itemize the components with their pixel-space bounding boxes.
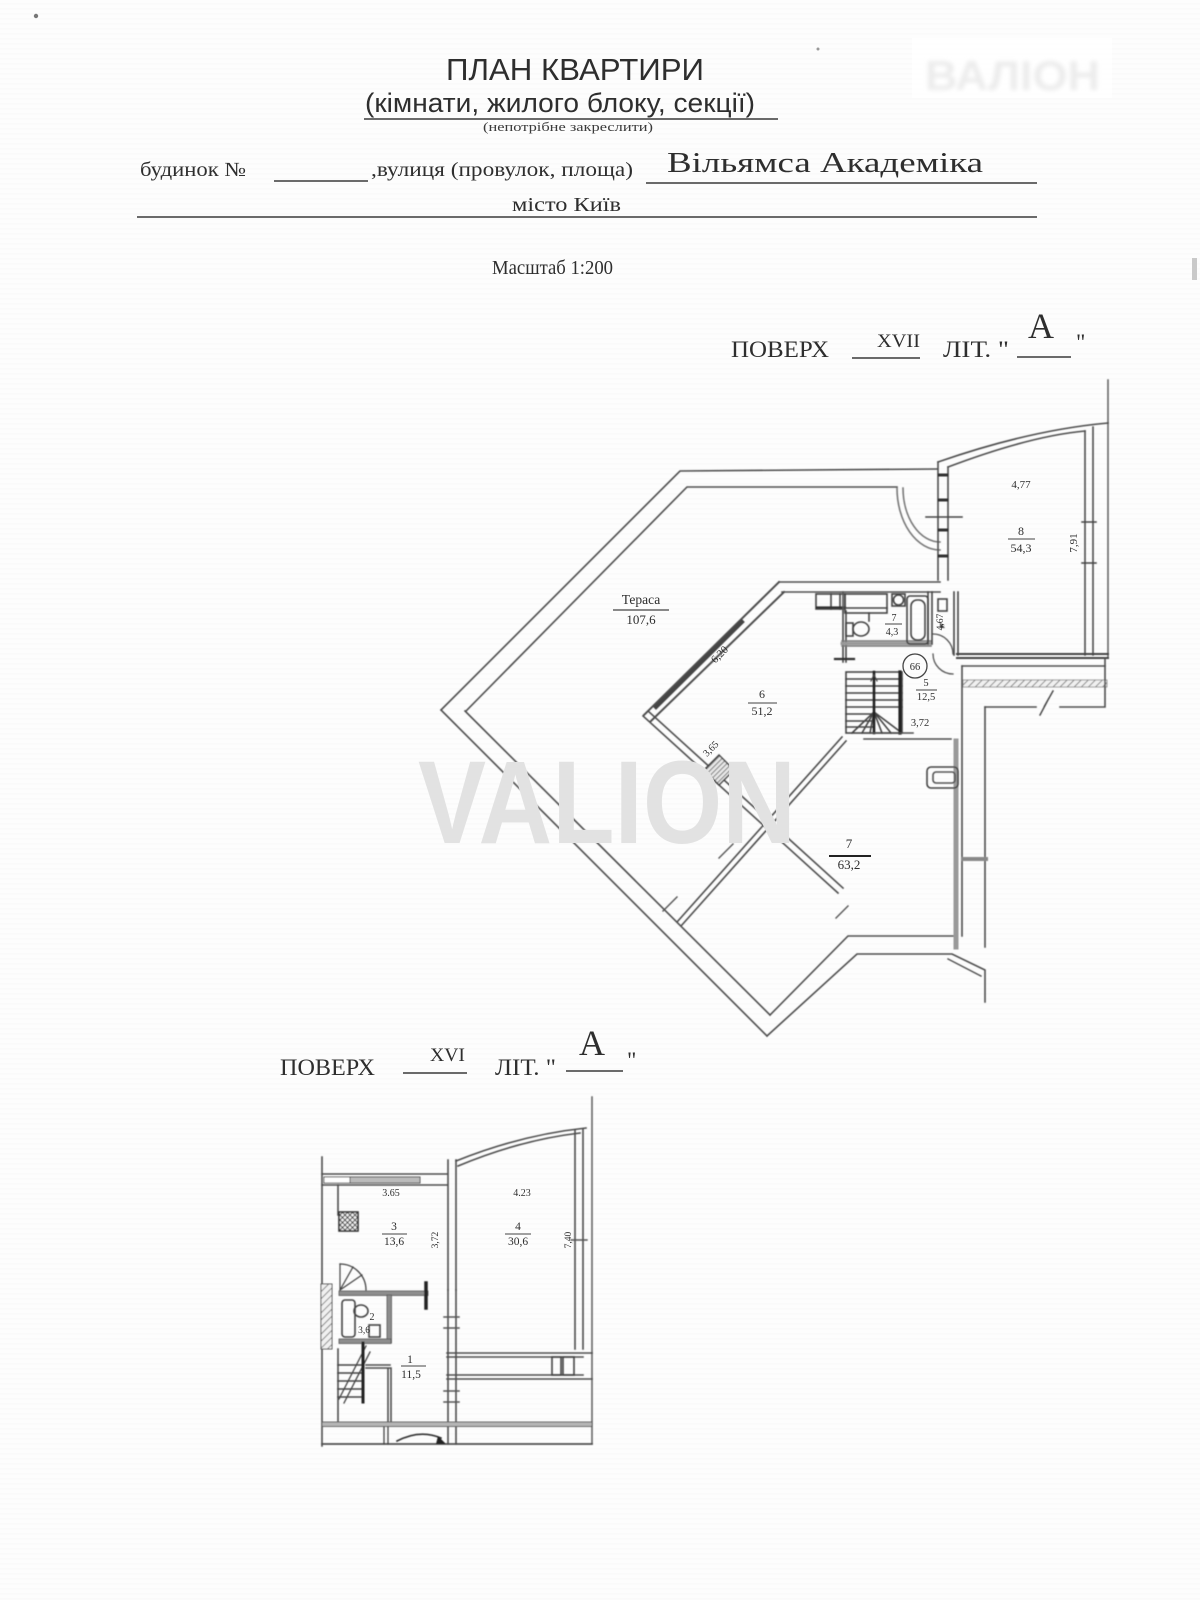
svg-text:будинок №: будинок № bbox=[140, 159, 246, 181]
svg-text:(кімнати, жилого блоку, секції: (кімнати, жилого блоку, секції) bbox=[365, 88, 755, 118]
svg-text:54,3: 54,3 bbox=[1011, 541, 1032, 555]
svg-text:30,6: 30,6 bbox=[508, 1236, 528, 1248]
svg-text:VALION: VALION bbox=[418, 737, 796, 869]
svg-text:4,3: 4,3 bbox=[886, 627, 899, 638]
svg-text:1: 1 bbox=[407, 1354, 413, 1366]
svg-text:4,67: 4,67 bbox=[936, 613, 946, 630]
svg-text:7: 7 bbox=[892, 613, 897, 624]
svg-text:3,6: 3,6 bbox=[358, 1326, 370, 1336]
svg-text:8: 8 bbox=[1018, 524, 1024, 538]
svg-text:ПОВЕРХ: ПОВЕРХ bbox=[731, 337, 829, 362]
svg-text:7: 7 bbox=[846, 836, 853, 851]
svg-text:А: А bbox=[1028, 306, 1054, 346]
svg-text:4,77: 4,77 bbox=[1011, 479, 1031, 491]
svg-text:Масштаб 1:200: Масштаб 1:200 bbox=[492, 257, 613, 279]
svg-text:XVII: XVII bbox=[877, 331, 920, 352]
svg-text:3,72: 3,72 bbox=[431, 1231, 441, 1248]
svg-text:3.65: 3.65 bbox=[382, 1188, 400, 1199]
svg-text:ВАЛІОН: ВАЛІОН bbox=[925, 52, 1100, 99]
svg-text:4: 4 bbox=[515, 1221, 521, 1233]
svg-text:ПЛАН КВАРТИРИ: ПЛАН КВАРТИРИ bbox=[446, 52, 704, 87]
svg-text:,вулиця (провулок, площа): ,вулиця (провулок, площа) bbox=[371, 159, 633, 181]
svg-text:": " bbox=[1076, 330, 1085, 355]
svg-text:6: 6 bbox=[759, 687, 765, 701]
svg-text:13,6: 13,6 bbox=[384, 1236, 404, 1248]
svg-text:63,2: 63,2 bbox=[838, 857, 861, 872]
svg-text:107,6: 107,6 bbox=[626, 612, 656, 627]
svg-text:7,91: 7,91 bbox=[1068, 533, 1080, 552]
svg-text:місто Київ: місто Київ bbox=[512, 194, 621, 216]
svg-text:7,40: 7,40 bbox=[564, 1231, 574, 1248]
svg-text:ПОВЕРХ: ПОВЕРХ bbox=[280, 1055, 375, 1080]
svg-text:11,5: 11,5 bbox=[401, 1369, 421, 1381]
svg-text:Вільямса Академіка: Вільямса Академіка bbox=[667, 148, 984, 179]
svg-text:(непотрібне закреслити): (непотрібне закреслити) bbox=[483, 120, 653, 134]
svg-text:XVI: XVI bbox=[430, 1045, 465, 1066]
svg-text:": " bbox=[627, 1048, 636, 1073]
svg-text:3,72: 3,72 bbox=[911, 718, 929, 729]
svg-text:66: 66 bbox=[910, 662, 921, 673]
svg-text:ЛІТ. ": ЛІТ. " bbox=[943, 337, 1009, 362]
svg-text:4.23: 4.23 bbox=[513, 1188, 531, 1199]
svg-text:5: 5 bbox=[923, 678, 928, 689]
svg-text:ЛІТ. ": ЛІТ. " bbox=[495, 1055, 556, 1080]
svg-text:12,5: 12,5 bbox=[917, 692, 935, 703]
svg-text:2: 2 bbox=[370, 1312, 375, 1323]
svg-text:Тераса: Тераса bbox=[622, 592, 661, 607]
svg-text:51,2: 51,2 bbox=[752, 704, 773, 718]
svg-text:А: А bbox=[579, 1023, 605, 1063]
svg-text:3: 3 bbox=[391, 1221, 397, 1233]
